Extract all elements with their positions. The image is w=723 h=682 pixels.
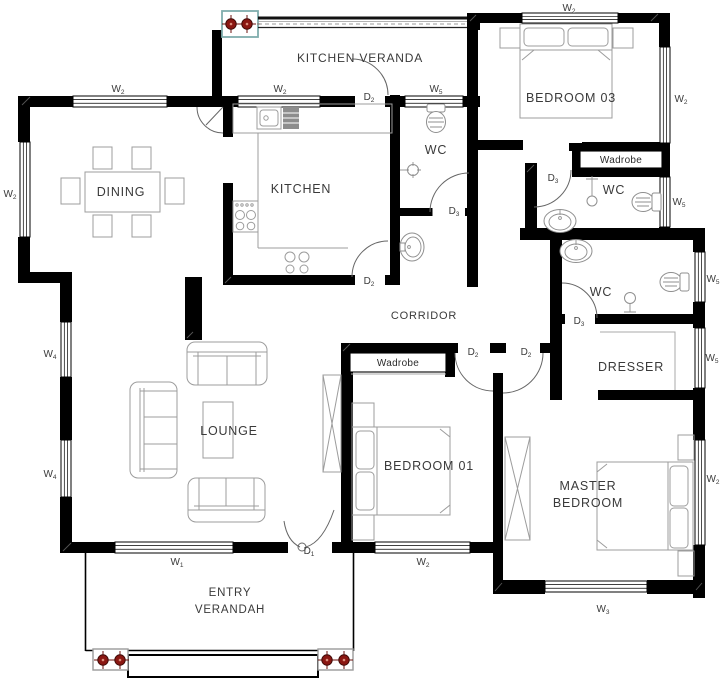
window-label-W2-1: W2 — [273, 84, 286, 96]
nightstand-symbol — [352, 403, 374, 427]
verandah-outline — [86, 553, 354, 651]
door-label-D2-4: D2 — [521, 347, 532, 359]
door-jamb — [385, 96, 388, 107]
room-label-lounge: LOUNGE — [200, 424, 258, 438]
entry-step — [128, 655, 318, 677]
door-label-D2-2: D2 — [364, 276, 375, 288]
window-symbol — [660, 47, 670, 143]
window-symbol — [695, 252, 705, 302]
wall-segment — [693, 302, 705, 328]
wc-master-fixtures — [560, 240, 689, 313]
window-symbol — [522, 13, 618, 23]
toilet-tank — [680, 273, 689, 291]
room-label-entry-verandah: ENTRYVERANDAH — [195, 587, 265, 616]
wall-segment — [659, 13, 670, 47]
pillow-symbol — [670, 466, 688, 506]
window-symbol — [61, 322, 71, 377]
nightstand-symbol — [352, 515, 374, 540]
pillow-symbol — [568, 28, 608, 46]
wall-segment — [572, 168, 666, 177]
pillow-symbol — [524, 28, 564, 46]
door-jamb — [332, 542, 335, 553]
floor-plan: KITCHEN VERANDADININGKITCHENWCBEDROOM 03… — [0, 0, 723, 682]
floor-plan-drawing: KITCHEN VERANDADININGKITCHENWCBEDROOM 03… — [0, 0, 723, 682]
wall-segment — [598, 314, 693, 324]
room-label-corridor: CORRIDOR — [391, 310, 457, 322]
hob-burner — [285, 252, 295, 262]
wall-segment — [525, 163, 537, 240]
wall-segment — [493, 373, 503, 592]
door-jamb — [352, 96, 355, 107]
wall-segment — [341, 343, 453, 353]
window-label-W2-14: W2 — [706, 474, 719, 486]
window-label-W2-7: W2 — [416, 557, 429, 569]
burner — [247, 211, 256, 220]
room-label-kitchen-veranda: KITCHEN VERANDA — [297, 51, 423, 65]
shower-pole — [624, 304, 636, 312]
room-label-wardrobe-bedroom01: Wadrobe — [377, 358, 419, 369]
door-jamb — [569, 143, 572, 151]
room-label-dining: DINING — [97, 185, 146, 199]
window-label-W5-12: W5 — [706, 274, 719, 286]
door-label-D3-7: D3 — [574, 316, 585, 328]
window-label-W2-3: W2 — [3, 189, 16, 201]
door-kitchen — [352, 241, 388, 277]
door-jamb — [455, 343, 458, 353]
wall-segment — [60, 377, 72, 440]
window-label-W3-8: W3 — [596, 604, 609, 616]
window-symbol — [115, 542, 233, 553]
dining-chair-symbol — [93, 147, 112, 169]
veranda-rail-top — [258, 17, 467, 20]
kitchen-veranda-structure — [222, 11, 467, 37]
pillow-symbol — [356, 431, 374, 469]
room-label-master-bedroom: MASTERBEDROOM — [553, 479, 623, 510]
dining-chair-symbol — [61, 178, 80, 204]
window-symbol — [20, 142, 30, 237]
wall-segment — [223, 275, 352, 285]
wall-segment — [520, 228, 703, 240]
wall-segment — [185, 277, 202, 340]
window-symbol — [695, 440, 705, 545]
window-symbol — [73, 96, 167, 107]
dining-chair-symbol — [93, 215, 112, 237]
shower-symbol — [408, 165, 419, 176]
toilet-tank — [652, 193, 661, 211]
hob-burner — [286, 265, 294, 273]
wall-segment — [320, 96, 352, 107]
window-label-W2-0: W2 — [111, 84, 124, 96]
wall-segment — [341, 542, 375, 553]
wc-corridor-fixtures — [400, 104, 446, 261]
burner — [247, 222, 255, 230]
wall-segment — [60, 542, 115, 553]
wall-segment — [659, 227, 670, 240]
window-label-W4-4: W4 — [43, 349, 56, 361]
sofa-lines — [140, 388, 177, 472]
door-jamb — [285, 542, 288, 553]
window-label-W5-2: W5 — [429, 84, 442, 96]
toilet-symbol — [427, 104, 445, 112]
burner — [236, 211, 245, 220]
knob — [241, 204, 243, 206]
window-label-W4-5: W4 — [43, 469, 56, 481]
door-jamb — [562, 314, 565, 324]
blanket-fold — [520, 50, 612, 60]
wall-segment — [550, 240, 562, 400]
window-label-W1-6: W1 — [170, 557, 183, 569]
door-jamb — [465, 208, 468, 216]
room-label-wardrobe-bedroom03: Wadrobe — [600, 155, 642, 166]
wall-segment — [493, 580, 545, 594]
window-label-W5-11: W5 — [672, 197, 685, 209]
sofa-symbol — [130, 382, 177, 478]
window-symbol — [695, 328, 705, 388]
basin-tap — [400, 243, 405, 251]
window-label-W5-13: W5 — [705, 353, 718, 365]
sofa-lines — [187, 352, 267, 385]
hob-burner — [299, 252, 309, 262]
knob — [251, 204, 253, 206]
wall-segment — [467, 13, 478, 287]
sink-bowl — [260, 110, 278, 126]
sofa-lines — [188, 478, 265, 510]
wall-segment — [388, 275, 400, 285]
wall-segment — [212, 30, 222, 107]
room-label-bedroom-01: BEDROOM 01 — [384, 459, 474, 473]
sink-faucet — [264, 116, 268, 120]
window-label-W2-9: W2 — [562, 3, 575, 15]
window-symbol — [375, 542, 470, 553]
door-jamb — [490, 343, 493, 353]
door-label-D1-0: D1 — [304, 546, 315, 558]
knob — [246, 204, 248, 206]
dining-chair-symbol — [132, 147, 151, 169]
burner — [236, 222, 244, 230]
door-dining-leaf — [206, 107, 223, 125]
wall-segment — [223, 98, 233, 137]
shower-symbol — [587, 196, 597, 206]
window-label-W2-10: W2 — [674, 94, 687, 106]
wall-segment — [467, 13, 480, 30]
door-master-bedroom — [503, 353, 543, 393]
wall-segment — [493, 343, 503, 353]
room-label-wc-master: WC — [590, 285, 612, 299]
door-label-D2-3: D2 — [468, 347, 479, 359]
door-jamb — [503, 343, 506, 353]
room-labels: KITCHEN VERANDADININGKITCHENWCBEDROOM 03… — [97, 51, 664, 616]
wall-segment — [223, 183, 233, 285]
shower-symbol — [625, 293, 636, 304]
door-label-D2-1: D2 — [364, 92, 375, 104]
door-entry-right — [306, 510, 334, 547]
room-label-bedroom-03: BEDROOM 03 — [526, 91, 616, 105]
hob-burner — [300, 265, 308, 273]
window-symbol — [61, 440, 71, 497]
wall-segment — [598, 390, 693, 400]
wall-segment — [60, 283, 72, 322]
wall-segment — [390, 208, 430, 216]
room-label-wc-bedroom03: WC — [603, 183, 625, 197]
wall-segment — [647, 580, 705, 594]
pillow-symbol — [670, 508, 688, 548]
lounge-tv-unit-symbol — [323, 375, 341, 472]
room-label-dresser: DRESSER — [598, 360, 664, 374]
pillow-symbol — [356, 472, 374, 510]
room-label-kitchen: KITCHEN — [271, 182, 331, 196]
room-label-wc-corridor: WC — [425, 143, 447, 157]
door-jamb — [385, 275, 388, 285]
dining-chair-symbol — [132, 215, 151, 237]
window-symbol — [545, 581, 647, 592]
door-label-D3-6: D3 — [548, 173, 559, 185]
door-label-D3-5: D3 — [449, 206, 460, 218]
nightstand-symbol — [678, 435, 694, 460]
master-closet-symbol — [505, 437, 530, 540]
wall-segment — [233, 542, 285, 553]
dining-chair-symbol — [165, 178, 184, 204]
nightstand-symbol — [500, 28, 520, 48]
shower-pole — [586, 176, 598, 196]
wall-segment — [18, 272, 72, 283]
wall-segment — [693, 228, 705, 252]
door-jamb — [540, 343, 543, 353]
window-symbol — [238, 96, 320, 107]
nightstand-symbol — [678, 551, 694, 576]
nightstand-symbol — [613, 28, 633, 48]
wall-segment — [693, 388, 705, 440]
knob — [236, 204, 238, 206]
